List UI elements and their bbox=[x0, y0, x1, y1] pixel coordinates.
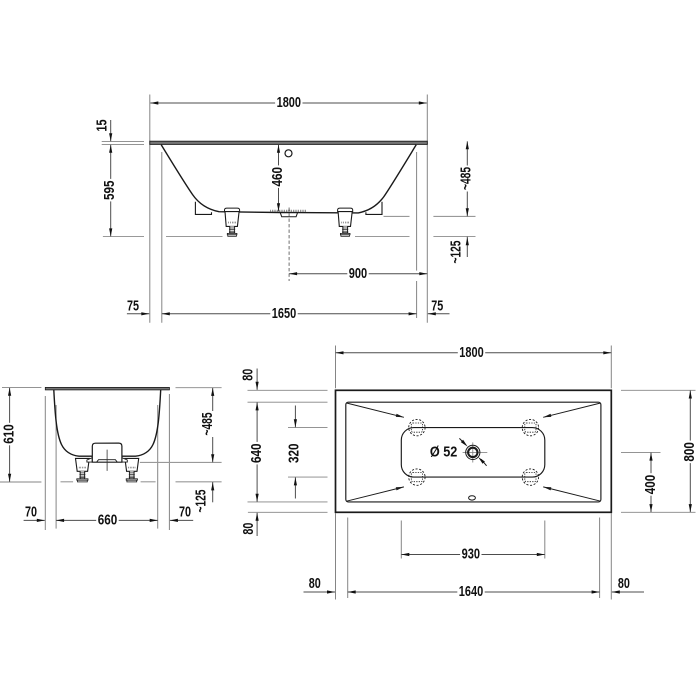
svg-text:930: 930 bbox=[462, 546, 480, 563]
svg-text:800: 800 bbox=[681, 442, 698, 462]
svg-text:595: 595 bbox=[101, 180, 118, 200]
svg-text:80: 80 bbox=[240, 369, 257, 381]
svg-text:80: 80 bbox=[309, 575, 321, 592]
svg-text:1650: 1650 bbox=[272, 305, 296, 322]
svg-text:610: 610 bbox=[0, 424, 17, 444]
svg-text:Ø 52: Ø 52 bbox=[430, 443, 458, 460]
svg-text:660: 660 bbox=[98, 512, 118, 529]
svg-text:1800: 1800 bbox=[277, 94, 301, 111]
svg-text:1800: 1800 bbox=[459, 344, 483, 361]
svg-text:1640: 1640 bbox=[459, 583, 483, 600]
svg-text:460: 460 bbox=[269, 167, 286, 187]
svg-text:70: 70 bbox=[25, 504, 37, 521]
svg-text:~125: ~125 bbox=[193, 490, 210, 513]
svg-text:640: 640 bbox=[248, 443, 265, 463]
svg-text:15: 15 bbox=[93, 120, 110, 132]
svg-text:80: 80 bbox=[618, 575, 630, 592]
svg-text:~485: ~485 bbox=[458, 167, 475, 190]
svg-text:75: 75 bbox=[127, 297, 139, 314]
svg-text:80: 80 bbox=[240, 523, 257, 535]
svg-text:~125: ~125 bbox=[448, 241, 465, 264]
svg-text:75: 75 bbox=[431, 297, 443, 314]
svg-text:70: 70 bbox=[179, 504, 191, 521]
svg-text:900: 900 bbox=[349, 265, 367, 282]
svg-text:~485: ~485 bbox=[199, 413, 216, 436]
svg-text:320: 320 bbox=[286, 443, 303, 463]
svg-text:400: 400 bbox=[642, 475, 659, 495]
